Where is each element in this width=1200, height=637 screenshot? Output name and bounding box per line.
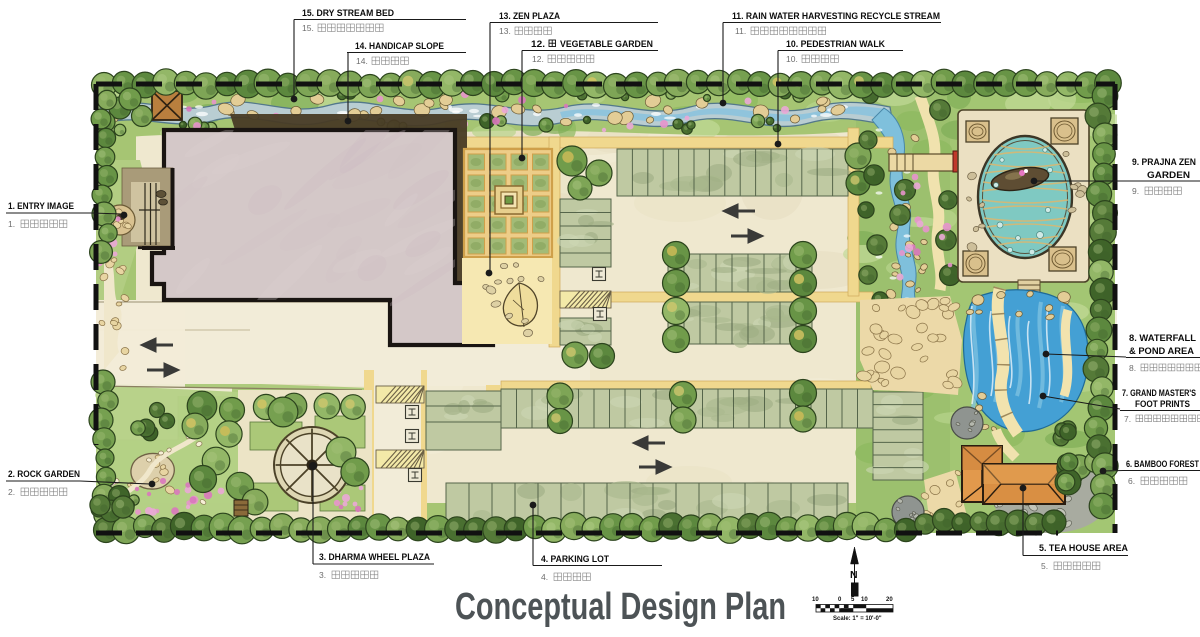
svg-text:12.: 12. — [532, 54, 544, 64]
svg-text:FOOT PRINTS: FOOT PRINTS — [1135, 399, 1190, 409]
svg-text:10: 10 — [861, 597, 868, 603]
svg-text:10.: 10. — [786, 54, 798, 64]
svg-text:4.: 4. — [541, 572, 548, 582]
svg-text:13.: 13. — [499, 26, 511, 36]
svg-text:15. DRY STREAM BED: 15. DRY STREAM BED — [302, 8, 394, 18]
svg-text:5.: 5. — [1041, 561, 1048, 571]
svg-text:14. HANDICAP SLOPE: 14. HANDICAP SLOPE — [355, 41, 444, 51]
svg-text:VEGETABLE GARDEN: VEGETABLE GARDEN — [560, 39, 653, 49]
svg-text:8. WATERFALL: 8. WATERFALL — [1129, 333, 1196, 343]
svg-text:3.: 3. — [319, 570, 326, 580]
svg-text:20: 20 — [886, 597, 893, 603]
svg-text:2. ROCK GARDEN: 2. ROCK GARDEN — [8, 469, 80, 479]
svg-text:& POND AREA: & POND AREA — [1129, 346, 1194, 356]
svg-text:N: N — [850, 569, 858, 581]
svg-text:14.: 14. — [356, 56, 368, 66]
svg-text:4. PARKING LOT: 4. PARKING LOT — [541, 554, 609, 564]
svg-text:9. PRAJNA ZEN: 9. PRAJNA ZEN — [1132, 157, 1196, 167]
svg-text:12.: 12. — [531, 39, 545, 49]
svg-text:10. PEDESTRIAN WALK: 10. PEDESTRIAN WALK — [786, 39, 885, 49]
svg-text:9.: 9. — [1132, 186, 1139, 196]
svg-text:3. DHARMA WHEEL PLAZA: 3. DHARMA WHEEL PLAZA — [319, 552, 430, 562]
svg-text:1.: 1. — [8, 219, 15, 229]
svg-text:7.: 7. — [1124, 414, 1131, 424]
svg-text:10: 10 — [812, 597, 819, 603]
svg-text:1. ENTRY IMAGE: 1. ENTRY IMAGE — [8, 201, 74, 211]
svg-text:11. RAIN WATER HARVESTING RECY: 11. RAIN WATER HARVESTING RECYCLE STREAM — [732, 11, 940, 21]
svg-text:6.: 6. — [1128, 476, 1135, 486]
svg-text:Conceptual Design Plan: Conceptual Design Plan — [455, 586, 786, 628]
svg-text:11.: 11. — [735, 26, 746, 36]
svg-text:7. GRAND MASTER'S: 7. GRAND MASTER'S — [1122, 388, 1196, 398]
svg-text:GARDEN: GARDEN — [1147, 170, 1190, 180]
svg-text:2.: 2. — [8, 487, 15, 497]
svg-text:15.: 15. — [302, 23, 314, 33]
svg-text:13. ZEN PLAZA: 13. ZEN PLAZA — [499, 11, 560, 21]
svg-text:6. BAMBOO FOREST: 6. BAMBOO FOREST — [1126, 459, 1199, 469]
svg-text:Scale: 1" = 10'-0": Scale: 1" = 10'-0" — [833, 616, 882, 622]
svg-text:8.: 8. — [1129, 363, 1136, 373]
svg-text:5. TEA HOUSE AREA: 5. TEA HOUSE AREA — [1039, 543, 1128, 553]
